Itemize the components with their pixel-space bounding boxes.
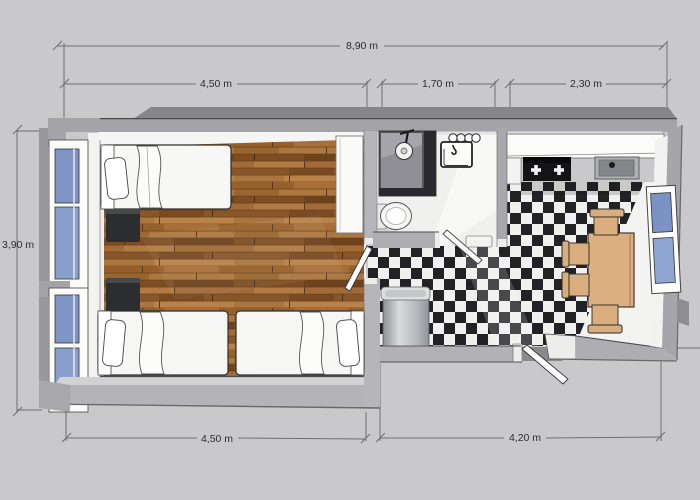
svg-text:4,20 m: 4,20 m bbox=[509, 432, 541, 444]
svg-text:4,50 m: 4,50 m bbox=[200, 78, 232, 90]
svg-text:4,50 m: 4,50 m bbox=[201, 433, 233, 445]
svg-text:8,90 m: 8,90 m bbox=[346, 40, 378, 52]
svg-text:2,30 m: 2,30 m bbox=[570, 78, 602, 90]
svg-text:1,70 m: 1,70 m bbox=[422, 78, 454, 90]
svg-text:3,90 m: 3,90 m bbox=[2, 239, 34, 251]
